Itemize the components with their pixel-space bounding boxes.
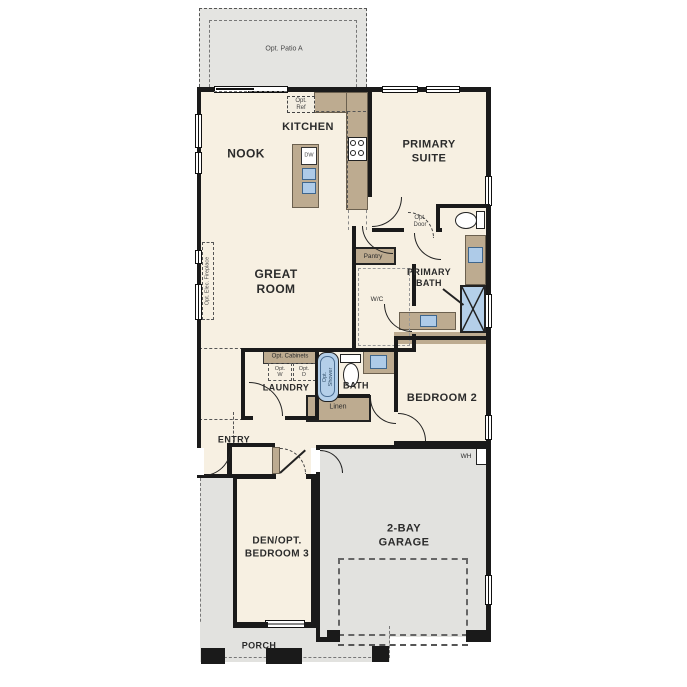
wall <box>486 206 491 294</box>
burner <box>350 150 356 156</box>
wall <box>197 475 201 478</box>
wall <box>229 443 275 447</box>
window <box>265 620 305 628</box>
garage-door-dash <box>338 644 468 646</box>
wall <box>285 416 317 420</box>
window <box>195 152 202 174</box>
window <box>195 114 202 148</box>
wall <box>486 328 491 415</box>
toilet-tank-primary <box>476 211 485 229</box>
garage-door-post <box>466 630 487 642</box>
window <box>485 575 492 605</box>
wall <box>394 336 490 340</box>
porch-pillar <box>372 646 389 662</box>
porch-pillar <box>266 648 302 664</box>
counter-dash-b <box>347 111 348 208</box>
toilet-bowl-primary <box>455 212 477 229</box>
opt-shower-tub-icon <box>317 352 339 402</box>
opt-fireplace-box <box>202 242 214 320</box>
wall <box>418 87 426 92</box>
island-sink-a <box>302 168 316 180</box>
wall <box>352 226 356 352</box>
entry-opening-dash <box>199 419 243 420</box>
burner <box>350 140 356 146</box>
wall <box>233 622 268 628</box>
garage-door-post <box>327 630 340 642</box>
wall <box>440 204 490 208</box>
wall <box>241 416 253 420</box>
wall <box>233 478 237 626</box>
island-sink-b <box>302 182 316 194</box>
toilet-tank-bath <box>340 354 361 363</box>
great-room-opening-dash <box>199 348 243 349</box>
dishwasher-icon <box>301 147 317 165</box>
sink-bath <box>370 355 387 369</box>
window <box>426 86 460 93</box>
wall <box>486 440 491 575</box>
wall <box>197 174 201 250</box>
tub-inner-line <box>320 356 335 397</box>
wall <box>486 87 491 176</box>
wall <box>311 474 316 628</box>
window <box>485 415 492 440</box>
wall <box>233 474 276 479</box>
patio-inner-dash <box>209 20 357 92</box>
wall <box>412 264 416 306</box>
wall <box>197 148 201 152</box>
den-fill <box>237 478 311 624</box>
toilet-bowl-bath <box>343 363 359 387</box>
window <box>485 176 492 206</box>
porch-pillar <box>201 648 225 664</box>
window <box>485 294 492 328</box>
wall <box>368 87 372 197</box>
opt-washer-box <box>268 363 292 381</box>
counter-dash-a <box>316 111 366 112</box>
burner <box>358 150 364 156</box>
garage-bay-dash <box>338 558 468 636</box>
opt-ref-box <box>287 96 315 113</box>
wall <box>197 264 201 284</box>
wall <box>197 87 201 114</box>
wall <box>197 320 201 448</box>
opt-dryer-box <box>293 363 316 381</box>
window <box>195 250 202 264</box>
wall <box>306 474 316 479</box>
wall <box>304 622 315 628</box>
sink-vanity-bottom <box>420 315 437 327</box>
wall <box>243 348 355 352</box>
wall <box>241 348 245 420</box>
wall <box>436 204 440 232</box>
hall-dash-v <box>233 412 234 443</box>
window <box>382 86 418 93</box>
shower-pan-icon <box>460 285 486 333</box>
burner <box>358 140 364 146</box>
wall <box>352 348 416 352</box>
sink-vanity-right <box>468 247 483 263</box>
den-door-jamb <box>272 447 280 474</box>
floor-plan: Opt. Patio A Opt. Ref KITCHEN NOOK DW PR… <box>0 0 687 687</box>
wall <box>316 472 320 641</box>
window <box>195 284 202 320</box>
wall <box>316 445 490 449</box>
